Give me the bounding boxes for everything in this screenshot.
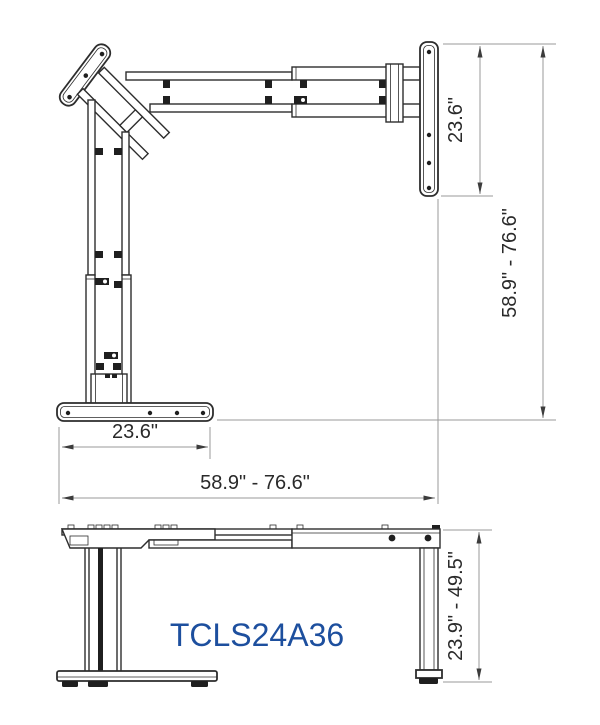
top-beam-vertical bbox=[86, 100, 131, 418]
front-left-foot bbox=[57, 671, 217, 687]
beam-clips bbox=[163, 80, 386, 104]
technical-drawing-page: 23.6" 58.9" - 76.6" 23.6" 58.9" - 76.6" bbox=[0, 0, 600, 725]
front-view: 23.9" - 49.5" TCLS24A36 bbox=[57, 525, 492, 687]
desk-frame-drawing: 23.6" 58.9" - 76.6" 23.6" 58.9" - 76.6" bbox=[0, 0, 600, 725]
right-rail-box bbox=[292, 529, 440, 548]
top-view: 23.6" 58.9" - 76.6" 23.6" 58.9" - 76.6" bbox=[57, 41, 556, 504]
top-beam-horizontal bbox=[126, 64, 420, 122]
front-right-leg bbox=[416, 548, 442, 684]
label-return-width: 23.6" bbox=[112, 421, 158, 443]
beam-clips bbox=[95, 148, 122, 370]
right-foot-plate bbox=[420, 42, 438, 196]
front-right-foot bbox=[416, 670, 442, 684]
label-overall-width: 58.9" - 76.6" bbox=[200, 472, 310, 494]
label-height-range: 23.9" - 49.5" bbox=[445, 551, 467, 661]
label-overall-depth: 58.9" - 76.6" bbox=[499, 208, 521, 318]
label-return-depth: 23.6" bbox=[445, 97, 467, 143]
leg-bracket-right bbox=[386, 64, 403, 122]
bottom-foot-plate bbox=[57, 403, 213, 421]
model-label: TCLS24A36 bbox=[170, 617, 344, 653]
front-top-rail bbox=[62, 525, 440, 548]
mid-bar bbox=[149, 540, 292, 548]
